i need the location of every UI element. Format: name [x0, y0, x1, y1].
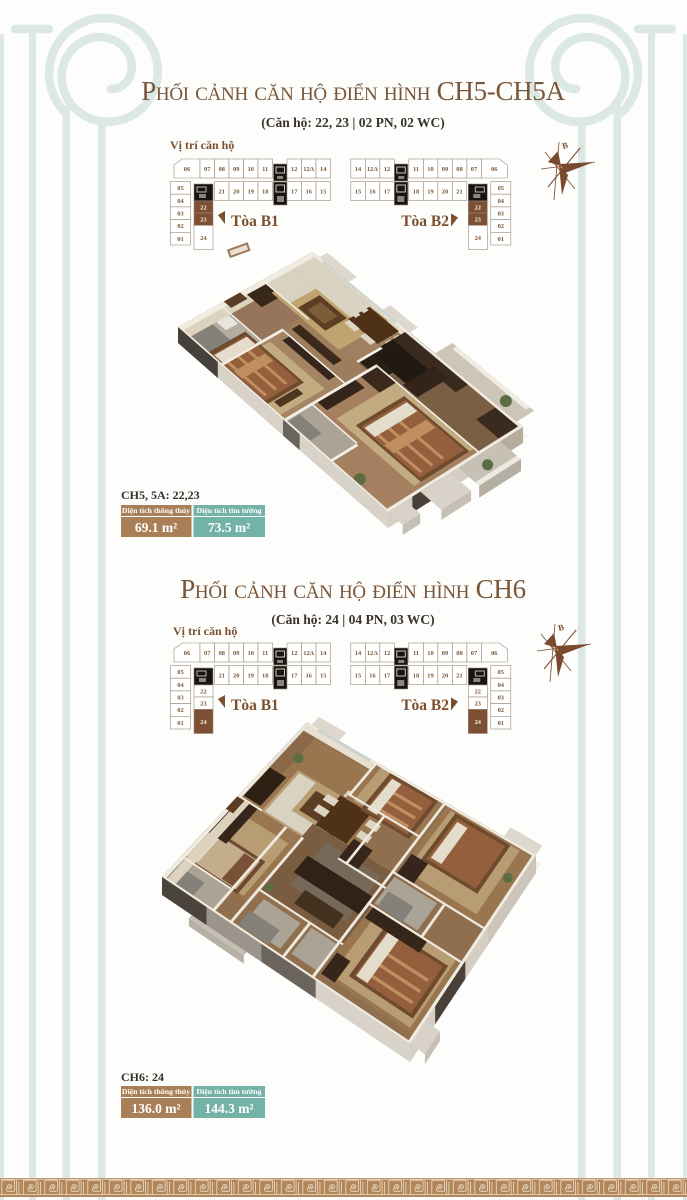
svg-text:12A: 12A [303, 650, 314, 657]
svg-text:22: 22 [200, 688, 206, 695]
svg-text:08: 08 [219, 166, 225, 173]
svg-text:16: 16 [369, 188, 376, 195]
svg-text:Tòa B1: Tòa B1 [231, 213, 279, 230]
svg-text:24: 24 [200, 235, 207, 242]
svg-text:Tòa B2: Tòa B2 [401, 697, 449, 714]
svg-text:12: 12 [291, 650, 297, 657]
svg-text:14: 14 [355, 650, 362, 657]
svg-text:03: 03 [177, 695, 183, 702]
svg-text:05: 05 [177, 185, 183, 192]
svg-text:10: 10 [427, 650, 433, 657]
svg-text:21: 21 [219, 672, 225, 679]
svg-text:18: 18 [262, 188, 268, 195]
svg-text:16: 16 [306, 188, 313, 195]
svg-text:(Căn hộ: 24 | 04 PN, 03 WC): (Căn hộ: 24 | 04 PN, 03 WC) [271, 612, 434, 627]
svg-text:01: 01 [177, 720, 183, 727]
svg-text:07: 07 [204, 650, 211, 657]
svg-text:Diện tích thông thủy: Diện tích thông thủy [122, 1087, 190, 1096]
svg-text:10: 10 [248, 650, 254, 657]
svg-text:CH6: 24: CH6: 24 [121, 1070, 164, 1084]
svg-text:69.1 m²: 69.1 m² [135, 520, 177, 535]
svg-text:17: 17 [291, 188, 298, 195]
svg-text:08: 08 [219, 650, 225, 657]
svg-text:17: 17 [384, 672, 391, 679]
svg-text:17: 17 [384, 188, 391, 195]
svg-text:14: 14 [355, 166, 362, 173]
svg-text:CH5, 5A: 22,23: CH5, 5A: 22,23 [121, 488, 200, 502]
svg-text:23: 23 [475, 701, 481, 708]
svg-text:12A: 12A [303, 166, 314, 173]
svg-text:20: 20 [233, 672, 239, 679]
svg-text:14: 14 [320, 650, 327, 657]
svg-text:23: 23 [200, 701, 206, 708]
svg-text:12: 12 [291, 166, 297, 173]
svg-text:09: 09 [233, 166, 239, 173]
svg-text:11: 11 [262, 166, 268, 173]
svg-text:Tòa B2: Tòa B2 [401, 213, 449, 230]
svg-text:24: 24 [200, 719, 207, 726]
svg-text:11: 11 [262, 650, 268, 657]
svg-text:12: 12 [384, 650, 390, 657]
svg-text:Diện tích thông thủy: Diện tích thông thủy [122, 506, 190, 515]
svg-text:Phối cảnh căn hộ điển hình CH6: Phối cảnh căn hộ điển hình CH6 [180, 574, 526, 604]
svg-text:23: 23 [200, 217, 206, 224]
svg-text:17: 17 [291, 672, 298, 679]
svg-text:05: 05 [498, 185, 504, 192]
svg-text:15: 15 [320, 672, 326, 679]
svg-text:04: 04 [498, 198, 505, 205]
svg-text:10: 10 [427, 166, 433, 173]
svg-text:Vị trí căn hộ: Vị trí căn hộ [170, 138, 234, 152]
svg-text:14: 14 [320, 166, 327, 173]
svg-text:07: 07 [471, 166, 478, 173]
svg-text:22: 22 [475, 688, 481, 695]
svg-text:18: 18 [262, 672, 268, 679]
svg-text:06: 06 [184, 166, 191, 173]
svg-text:19: 19 [248, 672, 254, 679]
svg-text:19: 19 [248, 188, 254, 195]
svg-text:B: B [561, 140, 569, 151]
svg-text:136.0 m²: 136.0 m² [131, 1101, 180, 1116]
svg-text:19: 19 [427, 672, 433, 679]
svg-text:04: 04 [177, 682, 184, 689]
svg-text:15: 15 [355, 188, 361, 195]
svg-text:12A: 12A [367, 166, 378, 173]
svg-text:21: 21 [456, 672, 462, 679]
svg-text:08: 08 [456, 166, 462, 173]
svg-text:21: 21 [456, 188, 462, 195]
svg-text:20: 20 [442, 672, 448, 679]
svg-text:20: 20 [442, 188, 448, 195]
svg-text:23: 23 [475, 217, 481, 224]
svg-text:05: 05 [498, 669, 504, 676]
svg-text:07: 07 [204, 166, 211, 173]
svg-text:16: 16 [369, 672, 376, 679]
svg-text:18: 18 [413, 672, 419, 679]
svg-text:11: 11 [413, 650, 419, 657]
svg-text:02: 02 [177, 223, 183, 230]
svg-text:04: 04 [177, 198, 184, 205]
svg-text:05: 05 [177, 669, 183, 676]
svg-text:09: 09 [442, 166, 448, 173]
svg-text:18: 18 [413, 188, 419, 195]
svg-text:12: 12 [384, 166, 390, 173]
svg-text:11: 11 [413, 166, 419, 173]
svg-text:Vị trí căn hộ: Vị trí căn hộ [173, 624, 237, 638]
svg-text:19: 19 [427, 188, 433, 195]
svg-text:09: 09 [442, 650, 448, 657]
svg-text:10: 10 [248, 166, 254, 173]
svg-text:03: 03 [498, 211, 504, 218]
svg-text:01: 01 [498, 236, 504, 243]
svg-text:Diện tích tim tường: Diện tích tim tường [196, 1087, 261, 1096]
svg-text:04: 04 [498, 682, 505, 689]
svg-text:20: 20 [233, 188, 239, 195]
svg-text:06: 06 [491, 166, 498, 173]
svg-text:21: 21 [219, 188, 225, 195]
svg-text:02: 02 [498, 707, 504, 714]
svg-text:09: 09 [233, 650, 239, 657]
svg-text:08: 08 [456, 650, 462, 657]
svg-text:03: 03 [498, 695, 504, 702]
svg-text:02: 02 [177, 707, 183, 714]
svg-text:15: 15 [320, 188, 326, 195]
svg-text:B: B [557, 622, 565, 633]
svg-text:16: 16 [306, 672, 313, 679]
svg-text:03: 03 [177, 211, 183, 218]
svg-text:06: 06 [184, 650, 191, 657]
svg-text:07: 07 [471, 650, 478, 657]
svg-text:22: 22 [475, 204, 481, 211]
svg-text:12A: 12A [367, 650, 378, 657]
svg-text:24: 24 [475, 235, 482, 242]
svg-text:144.3 m²: 144.3 m² [204, 1101, 253, 1116]
svg-text:15: 15 [355, 672, 361, 679]
svg-text:01: 01 [177, 236, 183, 243]
svg-text:06: 06 [491, 650, 498, 657]
svg-text:01: 01 [498, 720, 504, 727]
svg-text:22: 22 [200, 204, 206, 211]
svg-text:73.5 m²: 73.5 m² [208, 520, 250, 535]
svg-text:Phối cảnh căn hộ điển hình CH5: Phối cảnh căn hộ điển hình CH5-CH5A [141, 76, 565, 106]
svg-text:Diện tích tim tường: Diện tích tim tường [196, 506, 261, 515]
svg-text:(Căn hộ: 22, 23 | 02 PN, 02 WC: (Căn hộ: 22, 23 | 02 PN, 02 WC) [261, 115, 444, 130]
svg-text:24: 24 [475, 719, 482, 726]
svg-text:02: 02 [498, 223, 504, 230]
svg-text:Tòa B1: Tòa B1 [231, 697, 279, 714]
